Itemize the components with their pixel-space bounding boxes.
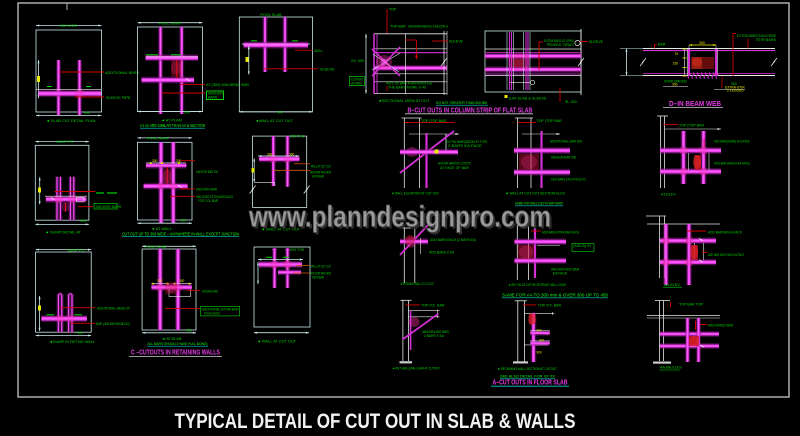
svg-text:◄WALL AT CUT OUT: ◄WALL AT CUT OUT [255,118,294,123]
svg-text:ANCHORED BAR: ANCHORED BAR [708,323,733,327]
svg-text:ADD BAR BARS A EA FACE): ADD BAR BARS A EA FACE) [714,162,750,166]
svg-text:TOP (TOP BAR: TOP (TOP BAR [537,119,563,123]
svg-text:POOL SLAB: POOL SLAB [260,13,282,17]
svg-text:SUMP PIT: SUMP PIT [56,140,75,144]
svg-text:WALL AT CUT OUT: WALL AT CUT OUT [311,164,331,168]
svg-text:D–IN BEAM WEB: D–IN BEAM WEB [669,101,721,108]
svg-text:◄ SUMP DETAIL AT: ◄ SUMP DETAIL AT [45,229,82,234]
svg-text:900: 900 [77,331,83,335]
svg-text:ADD BARS/B EA FACE: ADD BARS/B EA FACE [708,230,743,234]
svg-text:ADD BARS(ADDN) B EA FACE: ADD BARS(ADDN) B EA FACE [714,140,750,144]
svg-text:900: 900 [277,111,283,115]
svg-text:◄SUMP IN RETNG WALL: ◄SUMP IN RETNG WALL [49,339,96,344]
svg-text:§ AT SLAB & SLEEVE: § AT SLAB & SLEEVE [509,96,547,100]
svg-text:[ADD B] XX: [ADD B] XX [574,244,592,248]
svg-text:SLEEVE: SLEEVE [320,68,335,72]
svg-text:900 WIDE: 900 WIDE [60,24,78,28]
svg-text:300: 300 [672,83,678,87]
svg-text:40 MIN: 40 MIN [351,81,362,85]
svg-text:SEE ALSO DETAIL FOR XX XX: SEE ALSO DETAIL FOR XX XX [500,374,555,379]
svg-text:900: 900 [84,111,90,115]
svg-text:POOL SUMP: POOL SUMP [159,21,182,25]
svg-text:2 BARS EA FACE: 2 BARS EA FACE [448,144,483,148]
svg-text:WALL AT CUT OUT: WALL AT CUT OUT [311,264,331,268]
svg-text:ADD BARS ABOVE & BELOW. A: ADD BARS ABOVE & BELOW. A [408,25,448,29]
svg-text:ADD BAR: ADD BAR [312,175,324,179]
svg-text:ADD BAR: ADD BAR [312,276,324,280]
svg-text:C –CUTOUTS IN RETAINING WALLS: C –CUTOUTS IN RETAINING WALLS [131,350,220,357]
svg-text:TOP BAR: TOP BAR [390,25,406,29]
svg-text:TOP (TOP BAR: TOP (TOP BAR [679,123,705,127]
svg-text:900: 900 [186,328,192,332]
svg-text:ADDITIONAL BARS: ADDITIONAL BARS [105,71,140,75]
svg-text:2-LEGGED: 2-LEGGED [727,89,744,93]
svg-text:◄ RET WALL(WALL BAR AT CUTOUT: ◄ RET WALL(WALL BAR AT CUTOUT [392,366,441,370]
svg-text:AT (300) MIN BEND BAR: AT (300) MIN BEND BAR [206,83,249,87]
svg-text:900: 900 [184,110,190,114]
svg-text:SL-300: SL-300 [565,100,577,104]
svg-text:300: 300 [539,339,545,343]
svg-text:300: 300 [267,152,273,156]
svg-text:ADDITIONAL BAR 300: ADDITIONAL BAR 300 [550,140,582,144]
svg-text:ANCHOR BARS: ANCHOR BARS [96,205,122,209]
svg-text:ALL BARS SHOULD HAVE FULL BOND: ALL BARS SHOULD HAVE FULL BOND) [148,341,209,346]
svg-text:ANCHOR BAR(THE CUTOUT): ANCHOR BAR(THE CUTOUT) [438,161,471,165]
svg-text:TOP /XX. BAR: TOP /XX. BAR [538,304,562,308]
svg-text:300: 300 [179,279,185,283]
svg-text:TYPICAL DETAIL OF CUT OUT IN S: TYPICAL DETAIL OF CUT OUT IN SLAB & WALL… [175,409,576,433]
svg-text:XX. 300: XX. 300 [351,59,364,63]
svg-text:BARS: BARS [208,95,218,99]
svg-text:TOP (TOP BAR: TOP (TOP BAR [421,119,447,123]
svg-text:AT EACH FACE: AT EACH FACE [204,312,220,316]
svg-text:◄ AT PLAN: ◄ AT PLAN [161,117,182,122]
svg-text:EA FACE: EA FACE [553,271,568,275]
svg-text:150: 150 [673,62,679,66]
svg-text:◄ SLAB CUT DETAIL PLAN: ◄ SLAB CUT DETAIL PLAN [46,118,96,123]
svg-text:300: 300 [699,41,705,45]
svg-text:CUT OUT UP TO 300 WIDE – ANYWH: CUT OUT UP TO 300 WIDE – ANYWHERE IN WAL… [122,231,239,236]
svg-text:◄ WALL AT CUT OUT SECTION ELEV: ◄ WALL AT CUT OUT SECTION ELEV [505,191,565,195]
svg-text:300: 300 [289,152,295,156]
svg-text:300×: 300× [314,49,323,53]
svg-text:TOP /XX. BAR: TOP /XX. BAR [421,304,445,308]
svg-text:A–CUT OUTS IN FLOOR SLAB: A–CUT OUTS IN FLOOR SLAB [493,380,568,387]
svg-text:www.planndesignpro.com: www.planndesignpro.com [248,201,551,234]
svg-text:◄ AT WALL: ◄ AT WALL [151,226,173,231]
svg-text:TOP: TOP [389,8,397,12]
svg-text:BAR: BAR [658,43,666,47]
svg-text:A1 A2 ARE SIMILAR THAN AA & SE: A1 A2 ARE SIMILAR THAN AA & SECTION [140,123,205,128]
svg-text:SLEEVE: SLEEVE [449,39,464,43]
svg-text:◄ RETAINING WALL AT CUT OUT: ◄ RETAINING WALL AT CUT OUT [400,282,434,286]
svg-text:ADD BAR EACH WAY EA FACE: ADD BAR EACH WAY EA FACE [708,253,744,257]
svg-text:2 BARS X EA: 2 BARS X EA [424,334,445,338]
svg-text:PROVIDE AT TOP&BOT: PROVIDE AT TOP&BOT [547,43,574,47]
svg-text:BAR (300.MIN BEND AT): BAR (300.MIN BEND AT) [96,322,130,326]
svg-text:◄SECTIONAL VIEW AT CUT: ◄SECTIONAL VIEW AT CUT [378,98,430,103]
svg-text:B–CUT OUTS IN COLUMN STRIP OF: B–CUT OUTS IN COLUMN STRIP OF FLAT SLAB [408,107,533,114]
svg-text:◄ WALL ELEVATION AT CUT OUT: ◄ WALL ELEVATION AT CUT OUT [391,191,440,195]
svg-text:THE BARS MORE X 40: THE BARS MORE X 40 [388,86,426,90]
svg-text:◄ WALL AT CUT OUT: ◄ WALL AT CUT OUT [257,338,297,343]
svg-text:ANCHOR BAR: ANCHOR BAR [196,188,217,192]
svg-text:300: 300 [157,279,163,283]
svg-text:AT.ELEV: AT.ELEV [661,193,676,197]
svg-text:SLEEVE: SLEEVE [589,40,604,44]
svg-text:AT FACE OF BAR: AT FACE OF BAR [440,166,469,170]
svg-text:◄ RET WL AT CUT RE-ENTRANT WAL: ◄ RET WL AT CUT RE-ENTRANT WALL X BAR [508,283,566,287]
svg-text:POOL SUMP: POOL SUMP [147,137,170,141]
svg-text:300: 300 [152,159,158,163]
svg-text:200 THK: 200 THK [290,134,305,138]
svg-text:900: 900 [180,218,186,222]
svg-text:◄ RETAINING WALL SECTION AT CU: ◄ RETAINING WALL SECTION AT CUTOUT [497,367,558,371]
svg-text:300: 300 [536,329,542,333]
svg-text:ADD BARS EACH FACE XX: ADD BARS EACH FACE XX [551,178,586,182]
svg-text:↔: ↔ [545,332,548,336]
svg-text:ANCHOR BAR 300: ANCHOR BAR 300 [551,156,576,160]
svg-text:DO NOT GREATER THAN 300 MM: DO NOT GREATER THAN 300 MM [436,100,487,105]
svg-text:ADDITIONAL BARS XX: ADDITIONAL BARS XX [97,307,130,311]
svg-text:TOP BAR TOP: TOP BAR TOP [679,303,704,307]
svg-text:ADD BARS 2 EA: ADD BARS 2 EA [429,251,455,255]
svg-text:HOR [ADD BAR: HOR [ADD BAR [202,289,218,293]
svg-text:SLEEVE PIPE: SLEEVE PIPE [106,96,131,100]
svg-text:200 THK: 200 THK [290,248,305,252]
svg-text:ADD BARS EACH (2 BARS EA): ADD BARS EACH (2 BARS EA) [430,238,476,242]
svg-text:AA.ELEV: AA.ELEV [664,283,680,287]
svg-text:300: 300 [536,350,542,354]
svg-text:75: 75 [674,52,678,56]
svg-text:900: 900 [80,219,86,223]
svg-text:POOL SLAB: POOL SLAB [145,245,167,249]
svg-text:300: 300 [176,159,182,163]
svg-text:STIR BARS: STIR BARS [756,38,777,42]
svg-text:ANCHOR BAR 300: ANCHOR BAR 300 [196,170,218,174]
svg-text:AA.BB.ELEV: AA.BB.ELEV [660,366,682,370]
svg-text:SAME FOR AA TO 300 mm & OVER 3: SAME FOR AA TO 300 mm & OVER 300 UP TO 4… [502,292,609,297]
svg-text:FOR COL BAR: FOR COL BAR [198,199,218,203]
